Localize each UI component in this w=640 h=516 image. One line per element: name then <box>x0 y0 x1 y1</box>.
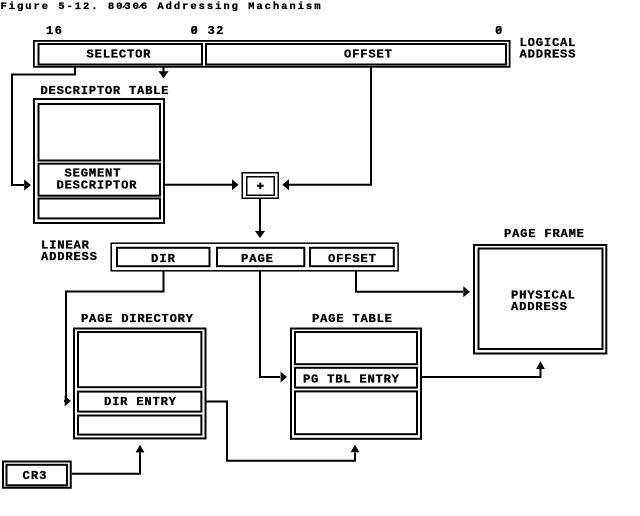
svg-text:ADDRESS: ADDRESS <box>511 300 567 314</box>
svg-text:PG TBL ENTRY: PG TBL ENTRY <box>303 372 400 386</box>
svg-text:0: 0 <box>495 24 502 38</box>
svg-text:ADDRESS: ADDRESS <box>41 250 97 264</box>
svg-text:OFFSET: OFFSET <box>344 48 392 62</box>
svg-text:DIR ENTRY: DIR ENTRY <box>104 395 177 409</box>
svg-text:ADDRESS: ADDRESS <box>520 48 576 62</box>
svg-text:DIR: DIR <box>151 252 176 266</box>
svg-text:CR3: CR3 <box>23 469 47 483</box>
svg-text:16: 16 <box>46 24 62 38</box>
svg-text:PAGE TABLE: PAGE TABLE <box>312 312 392 326</box>
svg-text:PAGE DIRECTORY: PAGE DIRECTORY <box>81 312 194 326</box>
svg-text:OFFSET: OFFSET <box>328 252 376 266</box>
svg-text:32: 32 <box>208 24 224 38</box>
svg-text:PAGE FRAME: PAGE FRAME <box>504 227 584 241</box>
svg-text:0: 0 <box>191 24 198 38</box>
svg-text:PAGE: PAGE <box>241 252 273 266</box>
svg-text:SELECTOR: SELECTOR <box>87 48 152 62</box>
svg-text:DESCRIPTOR TABLE: DESCRIPTOR TABLE <box>41 84 169 98</box>
svg-text:DESCRIPTOR: DESCRIPTOR <box>57 179 138 193</box>
